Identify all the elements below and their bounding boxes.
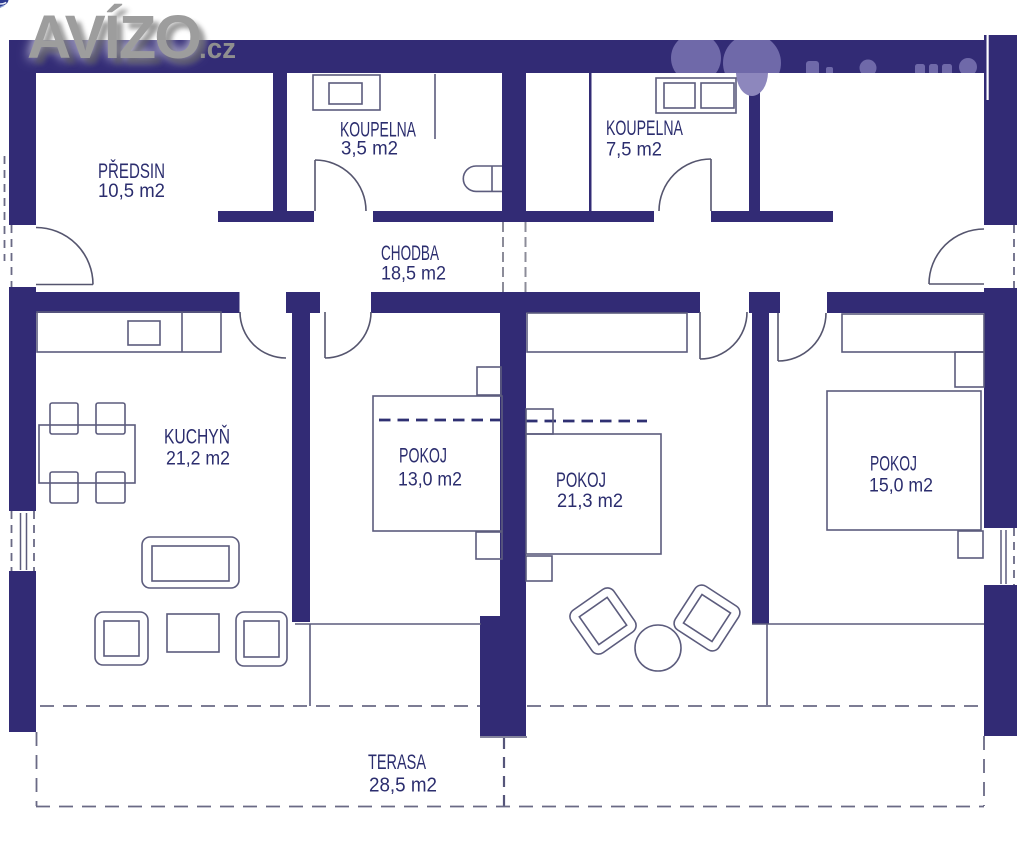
- svg-text:TERASA: TERASA: [368, 750, 426, 774]
- svg-text:3,5 m2: 3,5 m2: [341, 139, 398, 160]
- svg-text:KOUPELNA: KOUPELNA: [606, 116, 683, 140]
- svg-text:21,3 m2: 21,3 m2: [557, 491, 623, 512]
- svg-text:15,0 m2: 15,0 m2: [869, 476, 933, 497]
- svg-text:AVÍZO: AVÍZO: [27, 3, 200, 71]
- svg-text:13,0 m2: 13,0 m2: [398, 470, 462, 491]
- svg-text:18,5 m2: 18,5 m2: [381, 264, 446, 285]
- svg-text:10,5 m2: 10,5 m2: [98, 181, 165, 202]
- svg-text:21,2 m2: 21,2 m2: [166, 449, 230, 470]
- svg-text:CHODBA: CHODBA: [381, 241, 439, 265]
- svg-text:POKOJ: POKOJ: [556, 468, 606, 492]
- svg-text:KUCHYŇ: KUCHYŇ: [164, 424, 230, 449]
- svg-text:7,5 m2: 7,5 m2: [606, 140, 662, 161]
- svg-text:28,5 m2: 28,5 m2: [369, 774, 437, 797]
- svg-text:POKOJ: POKOJ: [399, 444, 447, 468]
- svg-text:.cz: .cz: [199, 33, 236, 65]
- svg-text:PŘEDSIN: PŘEDSIN: [98, 158, 165, 183]
- svg-text:POKOJ: POKOJ: [870, 452, 917, 476]
